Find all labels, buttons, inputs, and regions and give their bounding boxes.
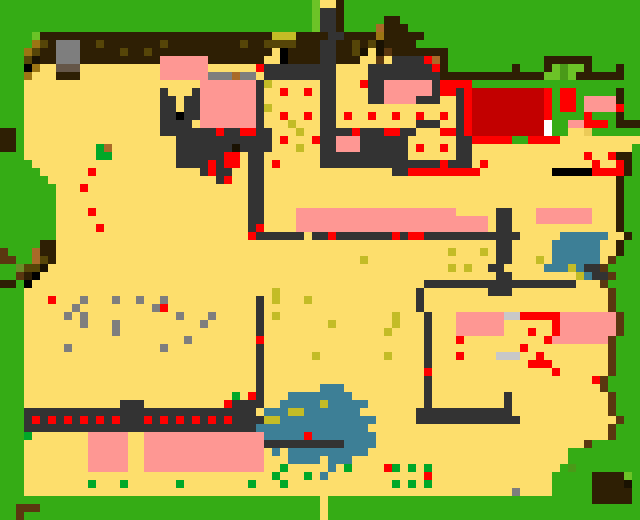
map-viewport — [0, 0, 640, 520]
pixel-map-canvas[interactable] — [0, 0, 640, 520]
